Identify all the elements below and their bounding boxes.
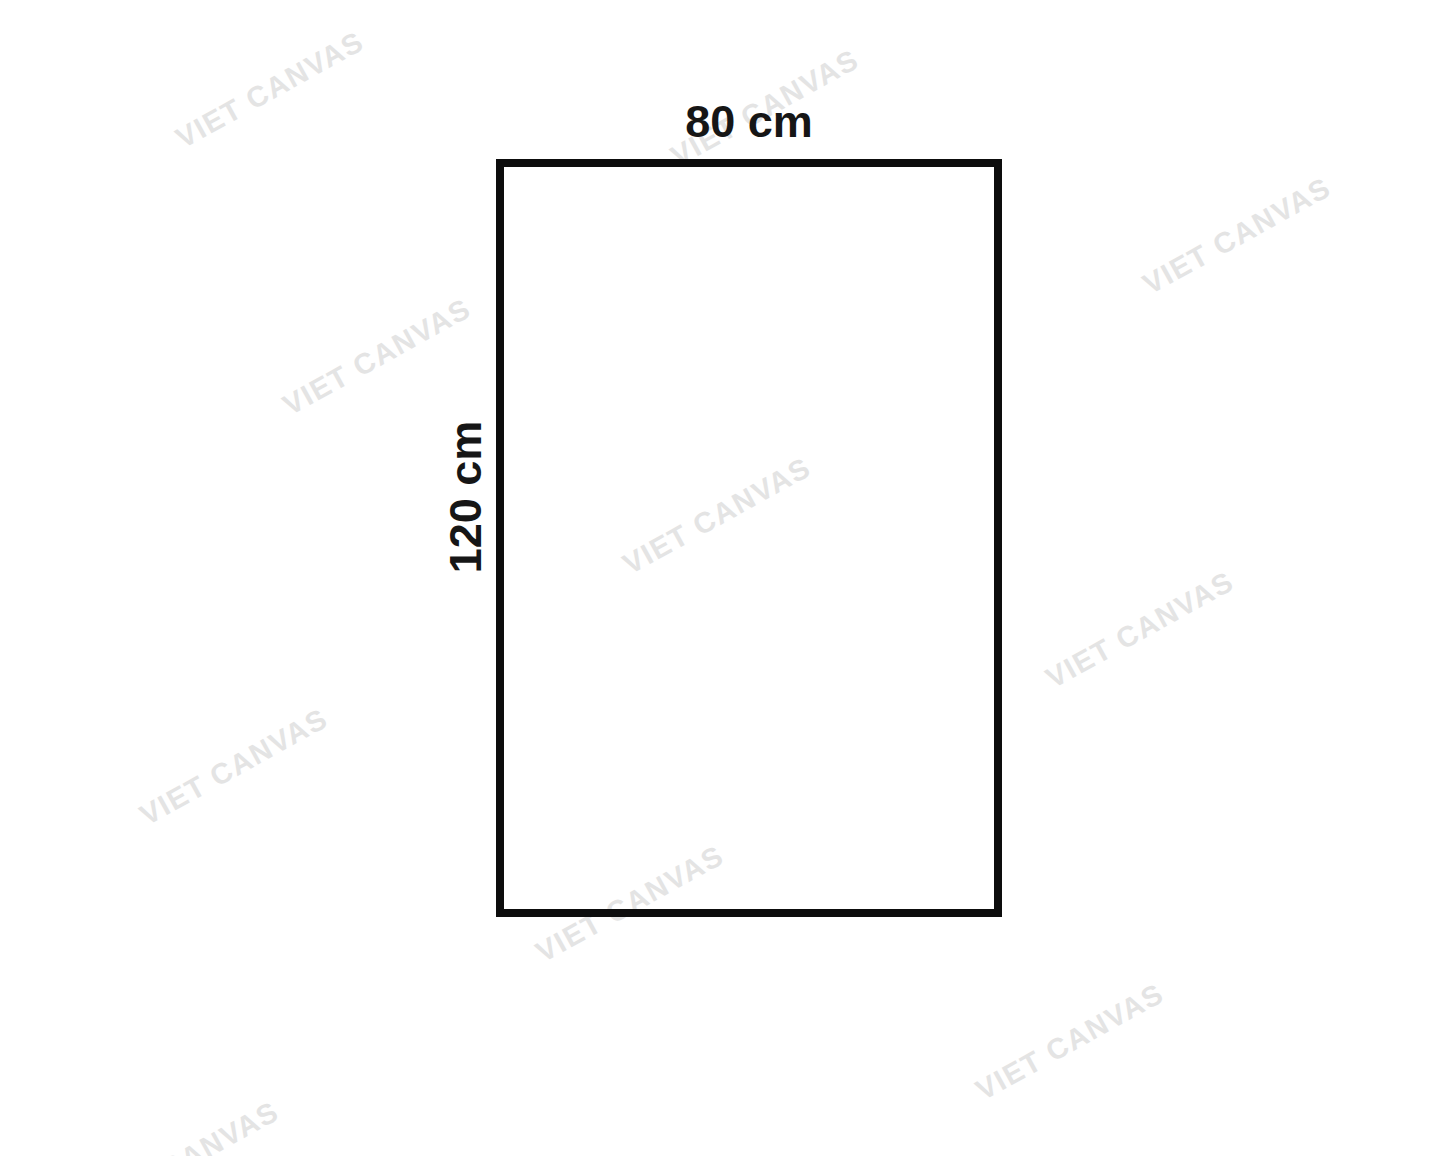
canvas-rectangle xyxy=(496,159,1002,917)
watermark-text: VIET CANVAS xyxy=(170,25,369,155)
watermark-text: VIET CANVAS xyxy=(970,977,1169,1107)
watermark-text: VIET CANVAS xyxy=(1040,565,1239,695)
watermark-text: VIET CANVAS xyxy=(134,702,333,832)
diagram-stage: VIET CANVAS VIET CANVAS VIET CANVAS VIET… xyxy=(0,0,1445,1156)
width-dimension-label: 80 cm xyxy=(685,96,813,148)
height-dimension-label: 120 cm xyxy=(440,421,492,574)
watermark-text: VIET CANVAS xyxy=(85,1095,284,1156)
watermark-text: VIET CANVAS xyxy=(1137,171,1336,301)
watermark-text: VIET CANVAS xyxy=(277,292,476,422)
